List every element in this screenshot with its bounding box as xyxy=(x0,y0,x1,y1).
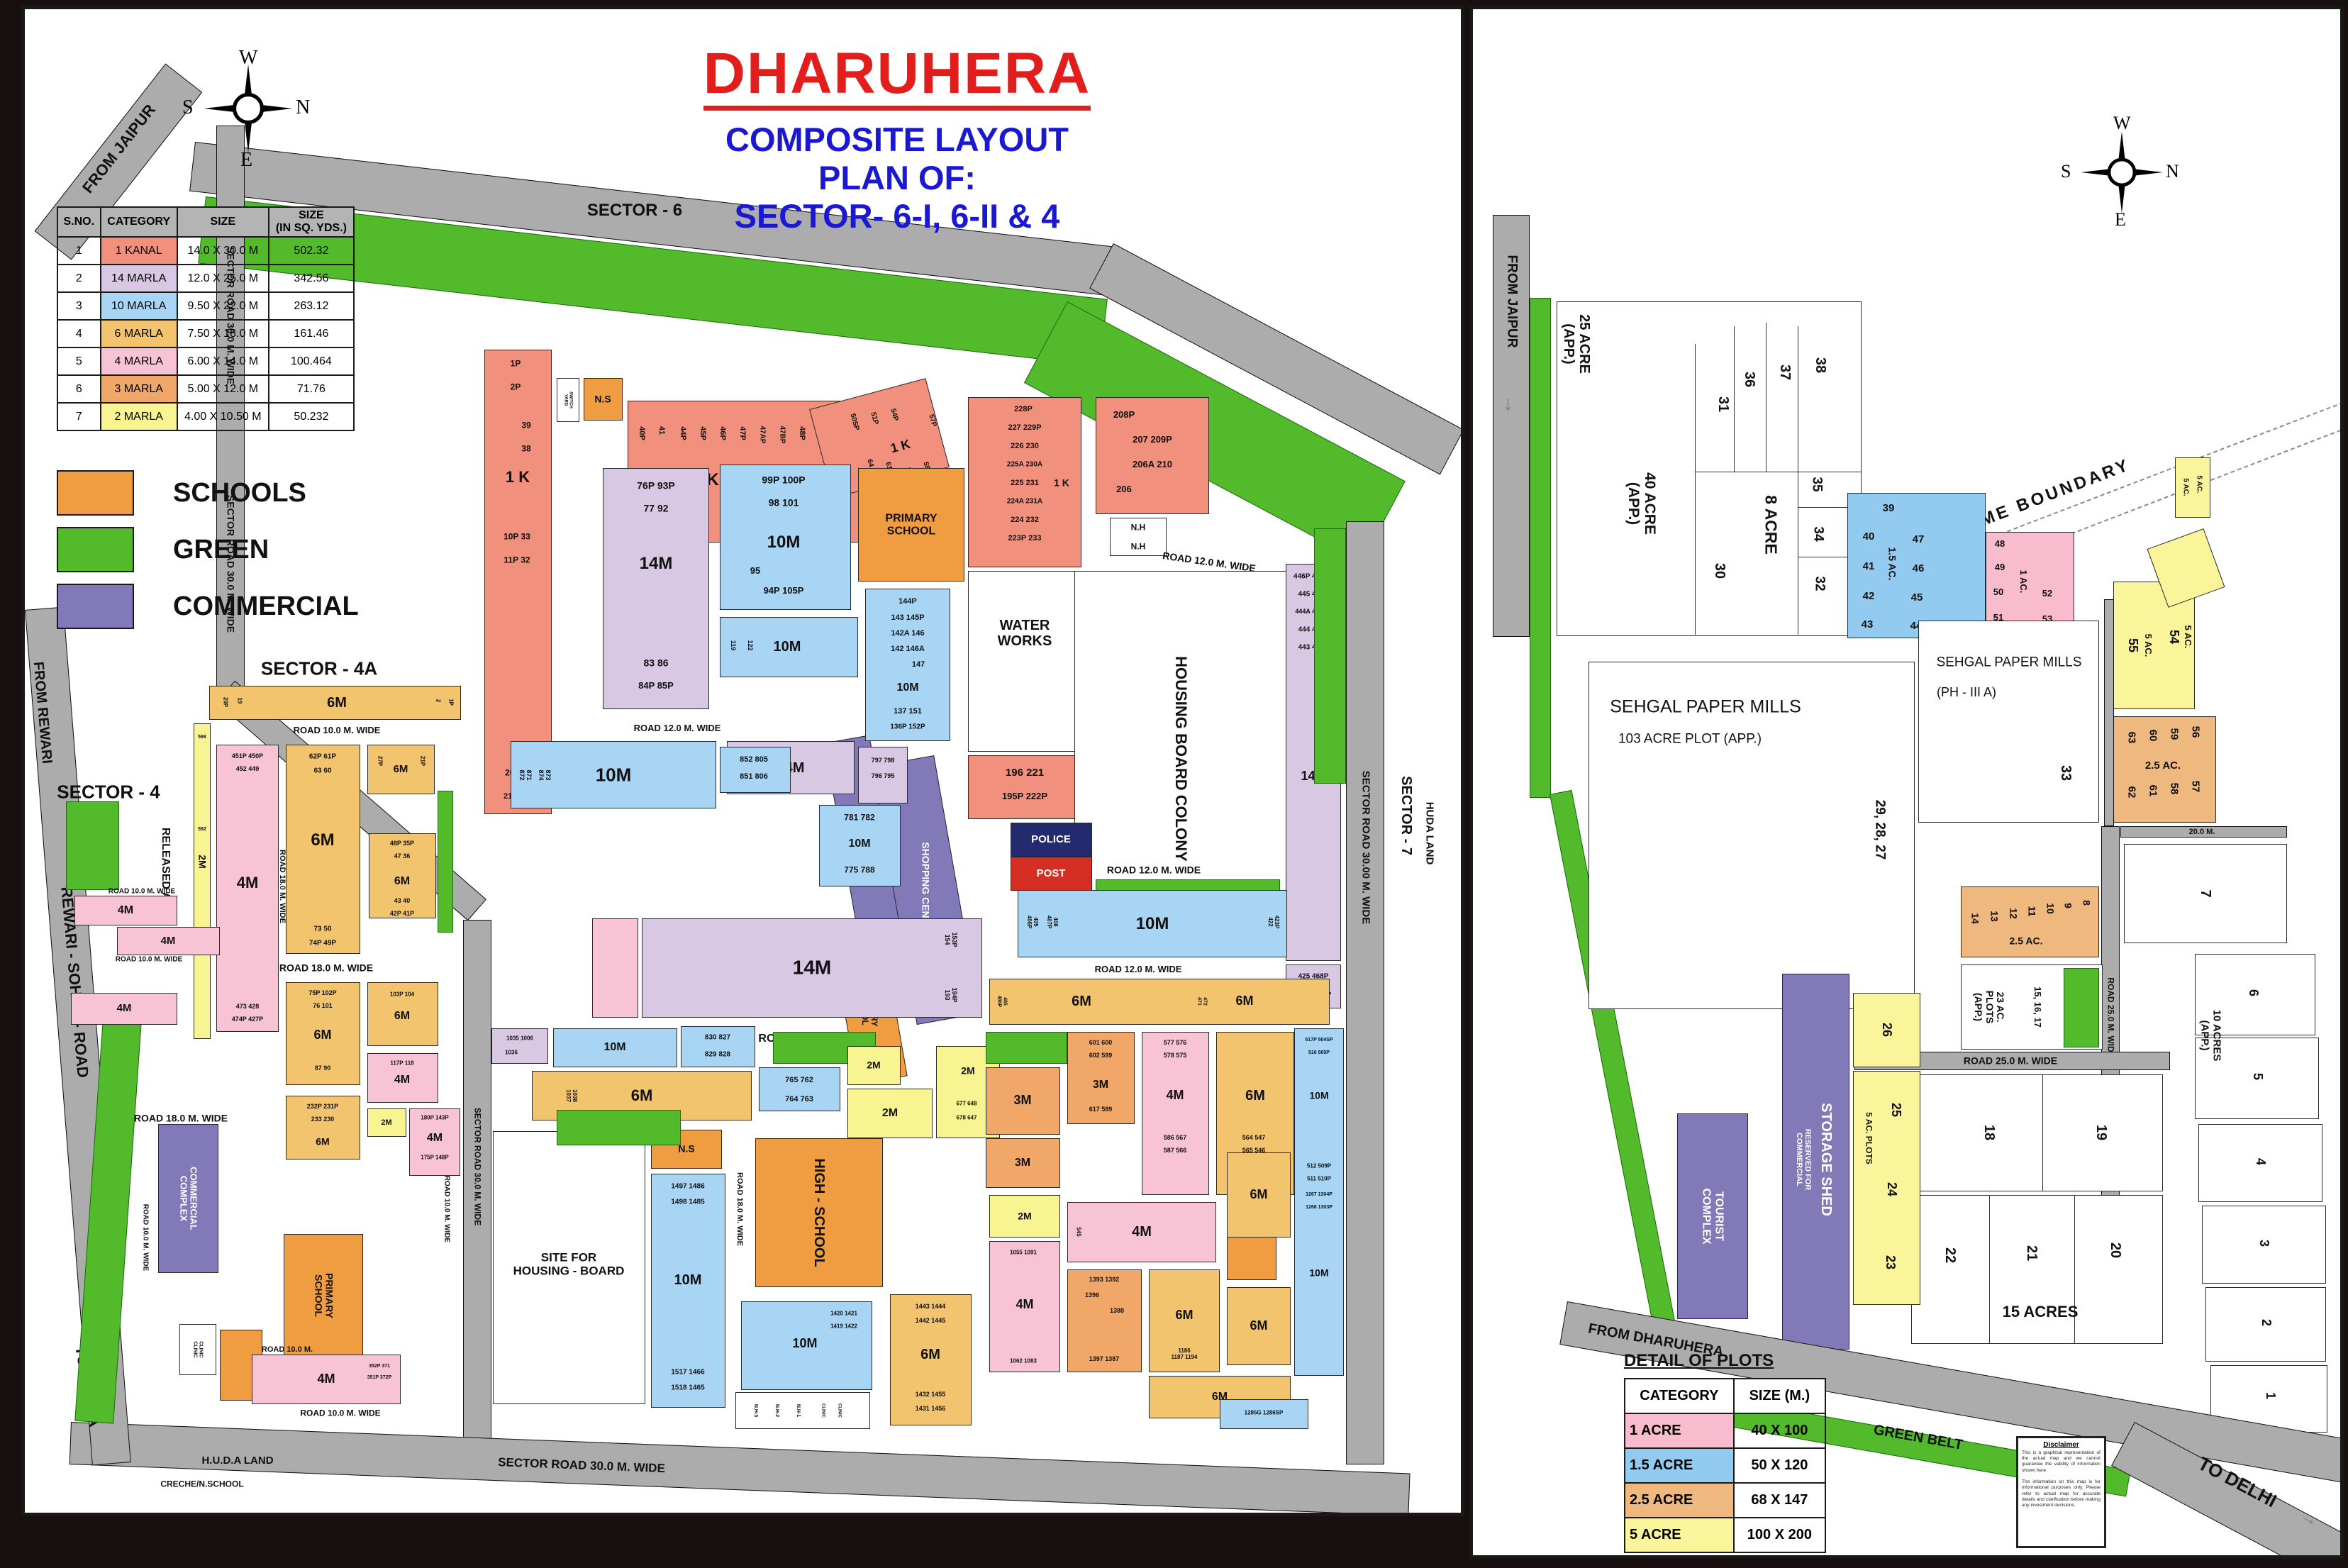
building-label: PRIMARY SCHOOL xyxy=(313,1273,335,1318)
plot-num: 224A 231A xyxy=(1007,498,1042,506)
plot-num: 1062 1083 xyxy=(1010,1359,1037,1365)
size-table-cell-sq-yds: 342.56 xyxy=(269,265,354,292)
plot-num: 83 86 xyxy=(643,657,668,668)
plots-table-cell-size: 50 X 120 xyxy=(1734,1448,1825,1483)
plot-num: 473 428 xyxy=(236,1003,260,1011)
plot-num: 451P 450P xyxy=(232,753,263,760)
police-post-label: POLICE xyxy=(1031,834,1071,846)
plots-table-cell-category: 1 ACRE xyxy=(1625,1413,1734,1448)
building-label: COMMERCIAL COMPLEX xyxy=(178,1167,199,1230)
plot-num: 512 509P xyxy=(1307,1164,1331,1170)
area-label: (PH - III A) xyxy=(1937,686,1996,700)
road-label: ROAD 10.0 M. WIDE xyxy=(109,888,175,896)
plot-num: 678 647 xyxy=(957,1116,977,1122)
plot-num: 142 146A xyxy=(891,645,925,653)
plot-num: 601 600 xyxy=(1089,1040,1113,1047)
road-label: ROAD 10.0 M. xyxy=(262,1345,313,1354)
block-label: 2M xyxy=(961,1065,974,1076)
block-label: 10M xyxy=(774,639,801,655)
plot-num: 87 90 xyxy=(315,1065,331,1072)
plot-num: 228P xyxy=(1014,405,1033,413)
plot-num: 1432 1455 xyxy=(916,1391,946,1399)
tourist-complex-label: TOURIST COMPLEX xyxy=(1700,1188,1725,1244)
size-table-cell-size: 12.0 X 25.0 M xyxy=(177,265,269,292)
plot-num: 99P 100P xyxy=(762,474,805,485)
plot-num: 144P xyxy=(898,597,917,606)
plot-num: 796 795 xyxy=(872,773,895,780)
plot-num: 76 101 xyxy=(313,1003,333,1010)
block-label: 4M xyxy=(1166,1089,1184,1103)
plot-num: 21 xyxy=(2024,1245,2040,1261)
plots-table-row: 5 ACRE100 X 200 xyxy=(1625,1518,1825,1552)
road-label: SECTOR ROAD 30.00 M. WIDE xyxy=(1359,771,1371,924)
right-map: FROM JAIPUR→SERVICE ROAD25 ACRE (APP.)40… xyxy=(1469,6,2344,1559)
plot-num: 351P 372P xyxy=(367,1375,392,1381)
plot-num: 34 xyxy=(1810,526,1825,541)
size-table-row: 46 MARLA7.50 X 18.0 M161.46 xyxy=(57,320,354,347)
compass-e: E xyxy=(240,149,252,172)
size-table-cell-sq-yds: 100.464 xyxy=(269,347,354,375)
building-label: HIGH - SCHOOL xyxy=(811,1158,827,1267)
plot-num: 57 xyxy=(2189,781,2201,793)
block-label: 10M xyxy=(603,1041,625,1054)
plot-num: 516 505P xyxy=(1308,1050,1330,1056)
plot-num: 61 xyxy=(2147,785,2159,797)
block-label: 2M xyxy=(867,1060,880,1070)
plot-num: 54 xyxy=(2166,630,2181,644)
plot-num: 1517 1466 xyxy=(671,1369,704,1377)
green-area xyxy=(2064,968,2099,1047)
size-table-cell-size: 5.00 X 12.0 M xyxy=(177,375,269,403)
road-label: ROAD 12.0 M. WIDE xyxy=(1107,864,1201,875)
plot-num: 47P xyxy=(738,426,747,440)
page-subtitle2: SECTOR- 6-I, 6-II & 4 xyxy=(699,197,1096,235)
disclaimer-title: Disclaimer xyxy=(2022,1441,2101,1449)
compass-w: W xyxy=(239,47,257,69)
block-label: 10M xyxy=(896,682,918,694)
size-table-cell-sno: 2 xyxy=(57,265,101,292)
plot-num: 1420 1421 xyxy=(830,1311,857,1318)
plot-num: 577 576 xyxy=(1164,1040,1187,1047)
acreage-label: 5 AC. xyxy=(2182,478,2190,496)
compass-n: N xyxy=(2166,161,2179,182)
size-table-cell-sq-yds: 502.32 xyxy=(269,237,354,265)
plot-num: 223P 233 xyxy=(1008,534,1042,543)
plot-num: 50 xyxy=(1993,587,2003,597)
switch-yard-label: SWITCH YARD xyxy=(563,391,572,408)
plot-num: 76P 93P xyxy=(637,480,674,491)
page-subtitle1: COMPOSITE LAYOUT PLAN OF: xyxy=(699,121,1096,197)
legend-swatch xyxy=(57,584,134,629)
block-label: 6M xyxy=(394,875,410,888)
size-table-row: 54 MARLA6.00 X 14.0 M100.464 xyxy=(57,347,354,375)
plot-num: 1397 1387 xyxy=(1089,1356,1120,1363)
plot-num: 59 xyxy=(2168,728,2180,740)
storage-shed xyxy=(1782,974,1849,1350)
plot-block-2m xyxy=(194,723,211,1039)
plot-line xyxy=(1695,472,1862,472)
plot-num: 196 221 xyxy=(1006,767,1044,779)
plot-num: 423P 422 xyxy=(1267,916,1279,929)
road-label: ROAD 25.0 M. WIDE xyxy=(2105,977,2115,1057)
plot-num: 677 648 xyxy=(957,1101,977,1108)
plot-num: 45P xyxy=(699,426,707,440)
plot-num: 602 599 xyxy=(1089,1052,1113,1060)
size-table-cell-sq-yds: 71.76 xyxy=(269,375,354,403)
plot-num: 1P xyxy=(447,699,454,706)
plot-num: 10P 33 xyxy=(503,532,530,541)
road-label: ROAD 10.0 M. WIDE xyxy=(443,1176,451,1242)
plot-num: N.H xyxy=(1131,523,1146,532)
green-area xyxy=(986,1032,1067,1064)
road-label: ROAD 10.0 M. WIDE xyxy=(142,1204,150,1271)
block-label: 6M xyxy=(311,831,334,850)
size-table-cell-sq-yds: 161.46 xyxy=(269,320,354,347)
plot-num: 2 xyxy=(435,699,441,702)
legend-item: SCHOOLS xyxy=(57,470,359,516)
block-label: 6M xyxy=(394,764,408,776)
plot-num: 45 xyxy=(1911,592,1923,604)
plot-num: 1431 1456 xyxy=(916,1406,946,1413)
plot-line xyxy=(1989,1195,1990,1344)
plots-table-row: 1.5 ACRE50 X 120 xyxy=(1625,1448,1825,1483)
plot-num: 2 xyxy=(2259,1319,2273,1326)
block-label: 6M xyxy=(1245,1088,1265,1103)
plots-table-header: CATEGORY xyxy=(1625,1379,1734,1413)
block-label: 1 K xyxy=(506,469,530,486)
size-table-header: CATEGORY xyxy=(101,207,177,237)
acreage-label: 5 AC. PLOTS xyxy=(1864,1112,1873,1164)
plot-num: 564 547 xyxy=(1242,1135,1266,1142)
storage-shed-label: STORAGE SHED xyxy=(1818,1103,1834,1216)
plot-num: 25 xyxy=(1888,1103,1903,1117)
plot-num: 55 xyxy=(2125,638,2140,652)
plot-num: 31 xyxy=(1715,396,1731,412)
plot-num: 5 xyxy=(2250,1073,2264,1080)
plot-num: 586 567 xyxy=(1164,1135,1187,1142)
plot-line xyxy=(1734,326,1735,472)
plot-block-4m xyxy=(592,918,638,1018)
size-table-header: S.NO. xyxy=(57,207,101,237)
plot-num: 26 xyxy=(1879,1023,1893,1037)
site-label: SITE FOR HOUSING - BOARD xyxy=(513,1251,625,1277)
size-table-cell-category: 10 MARLA xyxy=(101,292,177,320)
block-label: 4M xyxy=(117,1003,132,1015)
size-table-cell-sno: 3 xyxy=(57,292,101,320)
size-table-row: 11 KANAL14.0 X 30.0 M502.32 xyxy=(57,237,354,265)
green-belt xyxy=(1530,298,1551,798)
legend-label: COMMERCIAL xyxy=(173,591,359,622)
plot-num: 44P xyxy=(679,426,687,440)
plot-num: 62P 61P xyxy=(309,753,336,761)
block-label: 4M xyxy=(394,1074,410,1086)
plot-num: 48P 35P xyxy=(390,840,414,847)
police-post-label: POST xyxy=(1037,868,1066,880)
plot-num: 147 xyxy=(912,660,925,669)
plot-num: 852 805 xyxy=(740,755,768,764)
plot-num: 42 xyxy=(1863,591,1875,603)
size-table-cell-sno: 1 xyxy=(57,237,101,265)
plot-num: 224 232 xyxy=(1011,516,1039,524)
plot-num: 472 471 xyxy=(1196,997,1207,1006)
block-label: 4M xyxy=(161,935,176,947)
plot-line xyxy=(1695,344,1696,635)
road-label: SECTOR ROAD 30.0 M. WIDE xyxy=(472,1108,482,1225)
block-label: 1 K xyxy=(1054,477,1069,488)
size-table-cell-sno: 5 xyxy=(57,347,101,375)
plot-num: 38 xyxy=(521,444,530,453)
clinic-label: CLINIC CLINIC xyxy=(192,1341,203,1357)
plot-num: 14 xyxy=(1969,913,1980,924)
compass-icon: W N S E xyxy=(202,62,294,155)
block-label: 2M xyxy=(882,1107,898,1120)
plot-num: 207 209P xyxy=(1133,435,1172,445)
plots-table-cell-size: 40 X 100 xyxy=(1734,1413,1825,1448)
detail-of-plots-table: CATEGORYSIZE (M.) 1 ACRE40 X 1001.5 ACRE… xyxy=(1624,1378,1826,1553)
plot-num: 1498 1485 xyxy=(671,1199,704,1206)
huda-land-label: H.U.D.A LAND xyxy=(201,1455,273,1467)
plot-num: 60 xyxy=(2147,730,2159,742)
size-table-cell-category: 6 MARLA xyxy=(101,320,177,347)
plots-table-cell-category: 2.5 ACRE xyxy=(1625,1483,1734,1518)
left-title-block: DHARUHERA COMPOSITE LAYOUT PLAN OF: SECT… xyxy=(699,45,1096,235)
plots-table-body: 1 ACRE40 X 1001.5 ACRE50 X 1202.5 ACRE68… xyxy=(1625,1413,1825,1552)
plot-num: 578 575 xyxy=(1164,1052,1187,1060)
industrial-area-panel: FROM JAIPUR→SERVICE ROAD25 ACRE (APP.)40… xyxy=(1469,6,2344,1559)
block-label: 6M xyxy=(1235,994,1253,1008)
plot-num: 194P 193 xyxy=(943,987,957,1002)
plot-num: 474P 427P xyxy=(232,1016,263,1023)
size-table-body: 11 KANAL14.0 X 30.0 M502.32214 MARLA12.0… xyxy=(57,237,354,430)
huda-land-label: HUDA LAND xyxy=(1423,802,1435,865)
plot-num: 1518 1465 xyxy=(671,1384,704,1392)
plot-num: 95 xyxy=(750,566,760,576)
block-label: 6M xyxy=(1072,994,1091,1009)
size-table-cell-sno: 7 xyxy=(57,403,101,430)
plot-num: 405 406P xyxy=(1025,916,1038,929)
plot-num: 56 xyxy=(2189,726,2201,738)
plot-num: 33 xyxy=(2058,765,2074,781)
plot-num: 1186 1187 1194 xyxy=(1172,1348,1198,1361)
block-label: 3M xyxy=(1013,1094,1031,1108)
plot-num: 19 xyxy=(236,698,243,704)
compass-icon: W N S E xyxy=(2079,130,2164,215)
plot-num: 143 145P xyxy=(891,613,924,622)
plots-table-cell-size: 100 X 200 xyxy=(1734,1518,1825,1552)
plots-table-cell-category: 5 ACRE xyxy=(1625,1518,1734,1552)
plot-num: 775 788 xyxy=(844,865,874,874)
plot-num: 871 872 xyxy=(518,769,532,780)
plot-num: 1036 xyxy=(505,1050,518,1057)
plot-num: 73 50 xyxy=(313,925,331,933)
road-label: ROAD 25.0 M. WIDE xyxy=(1964,1055,2057,1066)
acreage-label: 5 AC. xyxy=(2143,634,2153,657)
sector-road-east xyxy=(1346,521,1384,1464)
block-label: 6M xyxy=(313,1028,331,1042)
plot-block-6m xyxy=(989,979,1330,1025)
acreage-label: 5 AC. xyxy=(2183,625,2193,649)
block-label: 4M xyxy=(427,1132,443,1145)
block-label: 4M xyxy=(1016,1298,1033,1312)
block-label: 10M xyxy=(674,1272,702,1288)
block-label: 2M xyxy=(1018,1211,1031,1221)
plot-line xyxy=(1766,323,1766,472)
size-table-header: SIZE (IN SQ. YDS.) xyxy=(269,207,354,237)
plot-num: 52 xyxy=(2042,589,2052,599)
plot-num: 43 xyxy=(1862,619,1874,631)
plot-block-10m xyxy=(1294,1028,1344,1376)
green-area xyxy=(438,791,453,933)
plot-num: 39 xyxy=(521,421,530,430)
acreage-label: 40 ACRE (APP.) xyxy=(1625,472,1658,535)
plot-num: 851 806 xyxy=(740,772,768,781)
plot-num: 1393 1392 xyxy=(1089,1277,1120,1284)
road-label: ROAD 18.0 M. WIDE xyxy=(735,1172,744,1246)
plot-18-19 xyxy=(1911,1074,2163,1191)
block-label: 3M xyxy=(1015,1157,1030,1169)
plot-num: 408 407P xyxy=(1045,916,1058,929)
compass-w: W xyxy=(2113,113,2131,134)
plot-num: 48P xyxy=(798,426,806,440)
plots-table-cell-size: 68 X 147 xyxy=(1734,1483,1825,1518)
road-strip xyxy=(2104,599,2114,826)
clinic-label: CLINIC xyxy=(837,1403,842,1418)
building-label: PRIMARY SCHOOL xyxy=(885,512,937,537)
plot-num: 24 xyxy=(1884,1182,1898,1196)
plot-num: 2P xyxy=(511,382,521,391)
acreage-label: 23 AC. PLOTS (APP.) xyxy=(1973,991,2005,1024)
acreage-label: 5 AC. xyxy=(2196,475,2203,493)
plot-num: 63 xyxy=(2125,732,2137,744)
plot-num: 63 60 xyxy=(313,767,331,775)
size-table-cell-category: 3 MARLA xyxy=(101,375,177,403)
plot-num: 136P 152P xyxy=(890,723,925,731)
block-label: 10M xyxy=(596,765,632,786)
road-label: ROAD 10.0 M. WIDE xyxy=(300,1408,380,1418)
acreage-label: 15 ACRES xyxy=(2003,1303,2079,1320)
storage-shed-sublabel: RESERVED FOR COMMERCIAL xyxy=(1795,1129,1812,1191)
plot-num: 9 xyxy=(2062,903,2073,908)
size-table-cell-category: 4 MARLA xyxy=(101,347,177,375)
plot-num: N.H-1 xyxy=(795,1404,801,1417)
road-label: ROAD 10.0 M. WIDE xyxy=(116,956,182,964)
plot-num: 1 xyxy=(2263,1392,2277,1399)
plot-num: 206 xyxy=(1116,484,1132,494)
size-table-cell-size: 14.0 X 30.0 M xyxy=(177,237,269,265)
plot-num: 592 xyxy=(198,827,206,833)
creche-label: CRECHE/N.SCHOOL xyxy=(160,1479,243,1489)
block-label: 6M xyxy=(394,1010,410,1023)
block-label: 10M xyxy=(1309,1090,1328,1101)
plot-num: 830 827 xyxy=(705,1034,730,1042)
plot-num: N.H-2 xyxy=(774,1404,779,1417)
plot-block-10m xyxy=(759,1067,840,1111)
plot-num: 1497 1486 xyxy=(671,1183,704,1191)
plot-num: 1419 1422 xyxy=(830,1324,857,1330)
plot-num: 103P 104 xyxy=(390,992,414,999)
sector-road-south xyxy=(69,1422,1411,1516)
plot-num: 1268 1303P xyxy=(1306,1205,1332,1211)
plot-num: 22 xyxy=(1942,1247,1958,1263)
size-table-cell-category: 2 MARLA xyxy=(101,403,177,430)
plot-num: 873 874 xyxy=(537,769,551,780)
water-works xyxy=(968,571,1081,752)
plot-line xyxy=(2042,1074,2043,1191)
plot-num: 47BP xyxy=(779,426,786,443)
plot-num: 452 449 xyxy=(236,766,260,773)
block-label: 10M xyxy=(1136,915,1169,933)
acreage-label: 2.5 AC. xyxy=(2010,935,2043,946)
size-table-cell-sq-yds: 263.12 xyxy=(269,292,354,320)
plot-num: 227 229P xyxy=(1008,423,1041,432)
plot-num: 23 xyxy=(1883,1255,1897,1269)
block-label: 10M xyxy=(1309,1267,1328,1278)
plot-num: 829 828 xyxy=(705,1051,730,1059)
size-table-cell-size: 6.00 X 14.0 M xyxy=(177,347,269,375)
plot-num: 1055 1091 xyxy=(1010,1250,1037,1257)
size-table-cell-size: 9.50 X 22.0 M xyxy=(177,292,269,320)
plot-num: 47AP xyxy=(759,426,767,443)
clinic-label: CLINIC xyxy=(820,1403,825,1418)
block-label: 6M xyxy=(631,1087,653,1104)
block-label: 10M xyxy=(848,838,870,850)
block-label: 14M xyxy=(793,957,831,979)
plot-num: 1267 1304P xyxy=(1306,1192,1332,1198)
area-label: 103 ACRE PLOT (APP.) xyxy=(1618,733,1762,747)
plot-line xyxy=(1798,326,1798,635)
plot-20-21-22 xyxy=(1911,1195,2163,1344)
plot-num: 180P 143P xyxy=(421,1116,448,1122)
block-label: 4M xyxy=(237,874,259,891)
plot-num: 58 xyxy=(2168,783,2180,795)
plot-num: 18 xyxy=(1981,1125,1997,1140)
plot-num: 84P 85P xyxy=(638,681,674,691)
plot-num: 41 xyxy=(657,426,666,435)
plot-num: 352P 371 xyxy=(369,1364,390,1369)
plot-line xyxy=(2074,1195,2075,1344)
disclaimer-body: This is a graphical representation of th… xyxy=(2022,1450,2101,1508)
plot-num: 195P 222P xyxy=(1002,791,1047,801)
block-label: 4M xyxy=(317,1372,335,1386)
plot-num: 20P xyxy=(222,697,228,707)
green-area xyxy=(66,801,119,890)
plot-num: 98 101 xyxy=(769,497,799,508)
plot-num: 4 xyxy=(2253,1158,2267,1165)
plot-num: 1442 1445 xyxy=(916,1318,946,1325)
size-table-row: 63 MARLA5.00 X 12.0 M71.76 xyxy=(57,375,354,403)
plot-num: 36 xyxy=(1742,372,1757,387)
plot-num: 175P 148P xyxy=(421,1155,448,1162)
plot-num: 122 xyxy=(746,640,753,650)
block-label: 6M xyxy=(1250,1188,1267,1202)
green-area xyxy=(1314,528,1346,784)
block-label: 6M xyxy=(920,1347,940,1362)
plot-num: 517P 504SP xyxy=(1305,1038,1332,1043)
sector-7-label: SECTOR - 7 xyxy=(1398,776,1414,855)
compass-s: S xyxy=(182,96,194,119)
plot-num: 32 xyxy=(1812,576,1827,591)
plot-num: 46 xyxy=(1913,563,1925,575)
plot-num: 74P 49P xyxy=(309,940,336,947)
plot-num: N.H xyxy=(1131,542,1146,551)
plot-num: 42P 41P xyxy=(390,911,414,918)
size-table-cell-size: 7.50 X 18.0 M xyxy=(177,320,269,347)
plot-num: 46P xyxy=(718,426,727,440)
block-label: 2M xyxy=(381,1118,391,1127)
plot-num: 35 xyxy=(1809,477,1824,491)
compass-e: E xyxy=(2115,209,2126,230)
plot-num: 12 xyxy=(2008,908,2018,919)
